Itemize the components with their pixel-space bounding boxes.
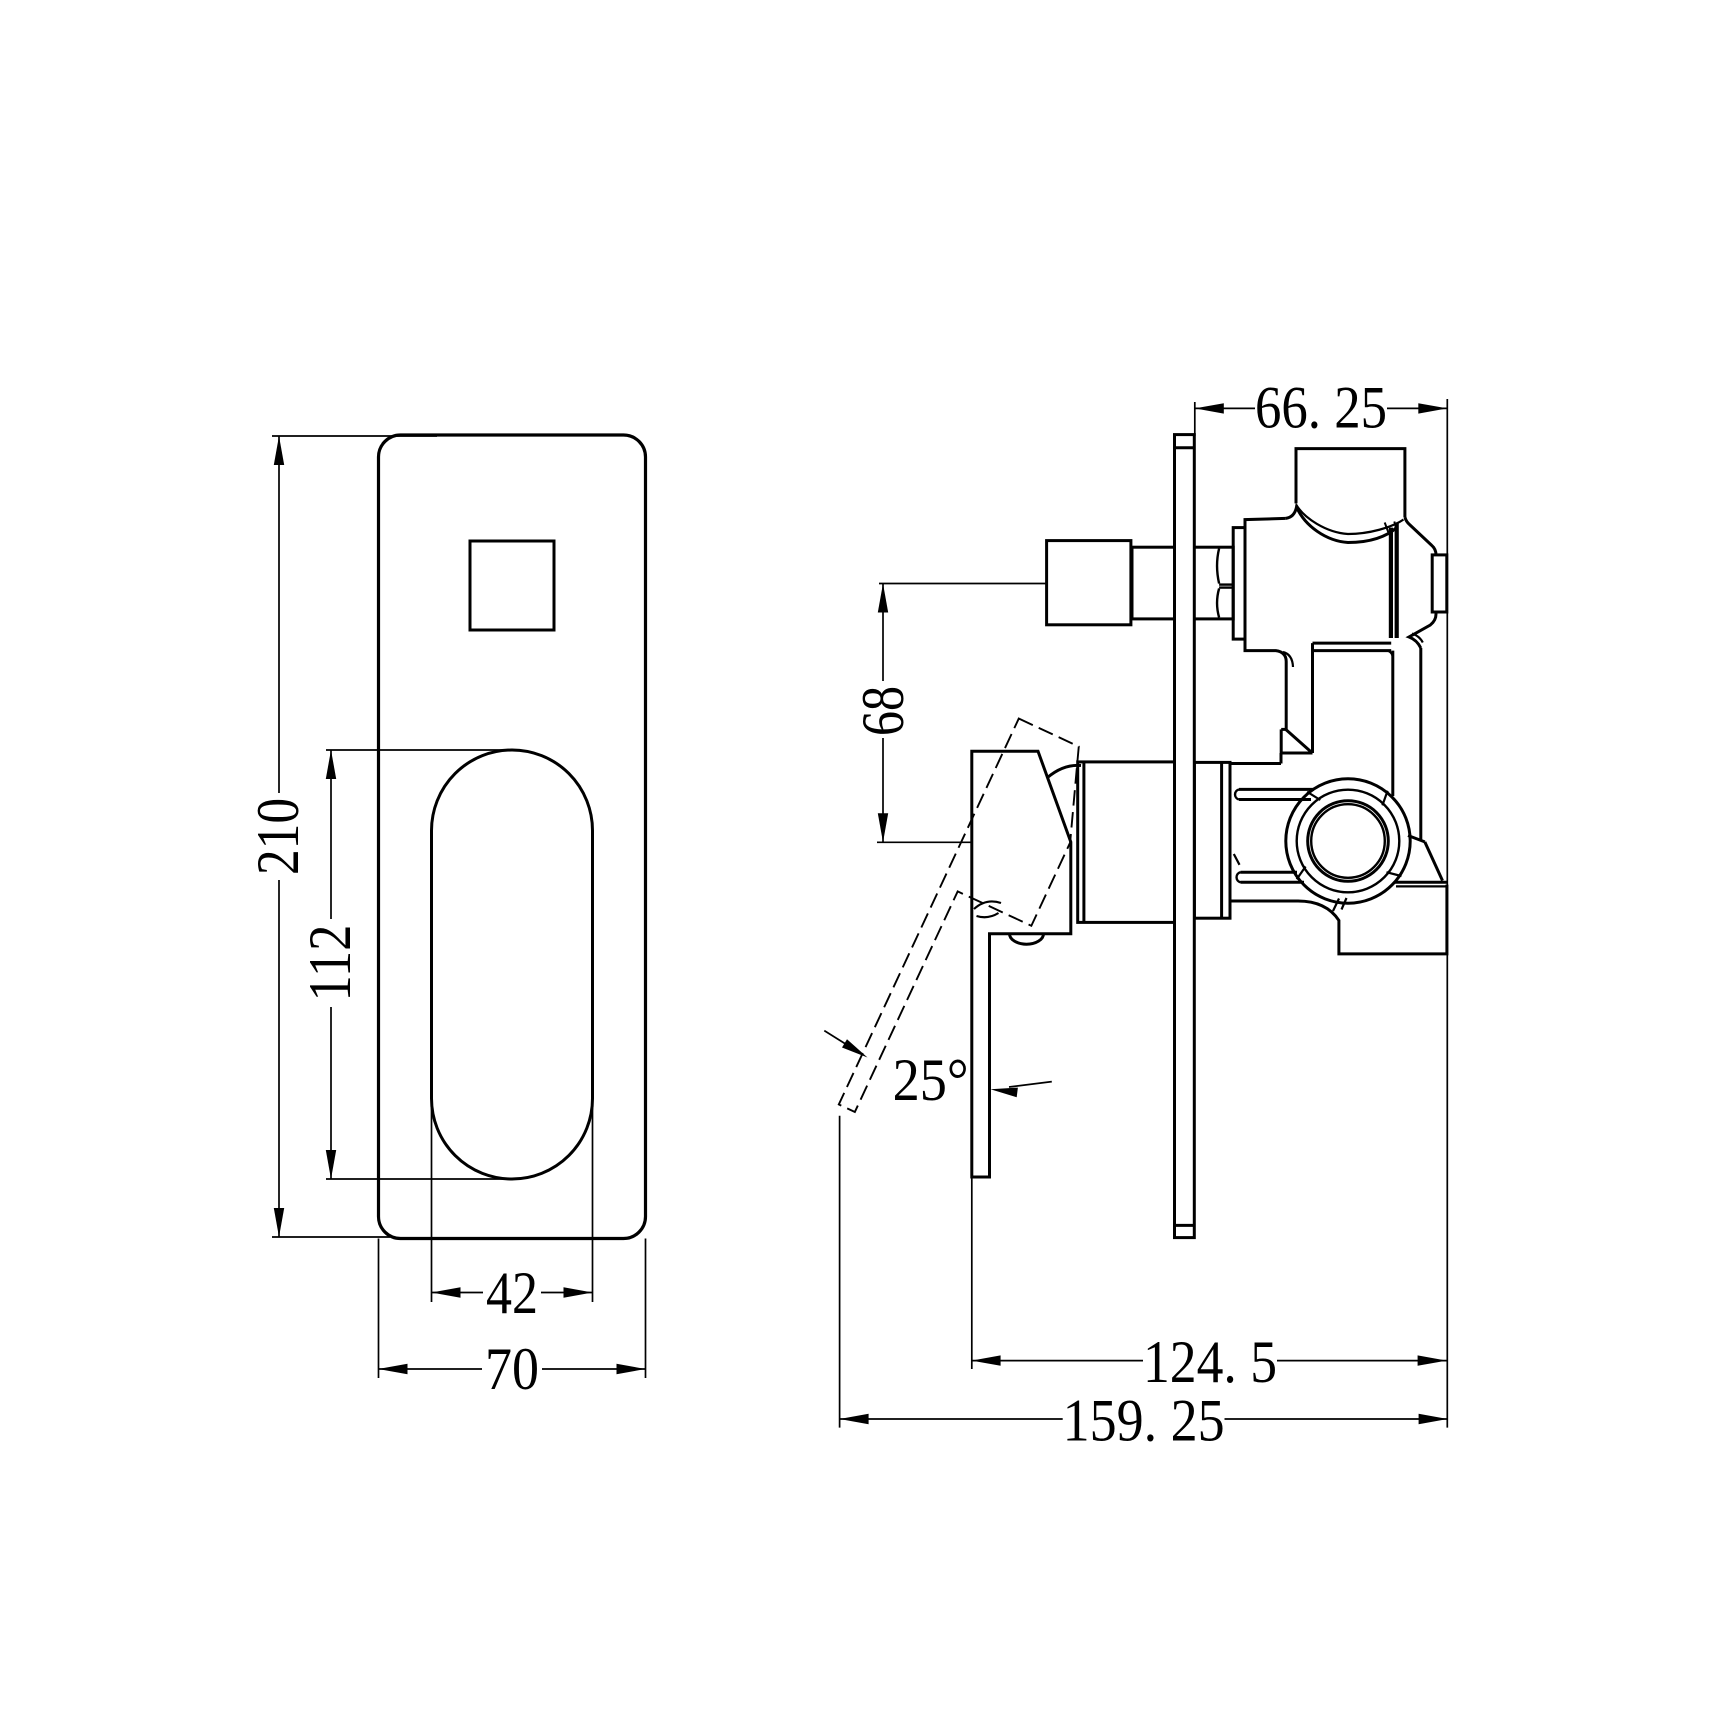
svg-text:25°: 25° [893, 1047, 969, 1113]
svg-text:42: 42 [486, 1260, 538, 1326]
svg-text:68: 68 [850, 686, 916, 736]
svg-text:159. 25: 159. 25 [1063, 1388, 1225, 1454]
svg-text:124. 5: 124. 5 [1143, 1329, 1277, 1395]
svg-text:210: 210 [245, 798, 311, 875]
svg-text:70: 70 [485, 1336, 539, 1402]
svg-text:112: 112 [297, 925, 363, 1002]
svg-text:66. 25: 66. 25 [1255, 375, 1387, 441]
